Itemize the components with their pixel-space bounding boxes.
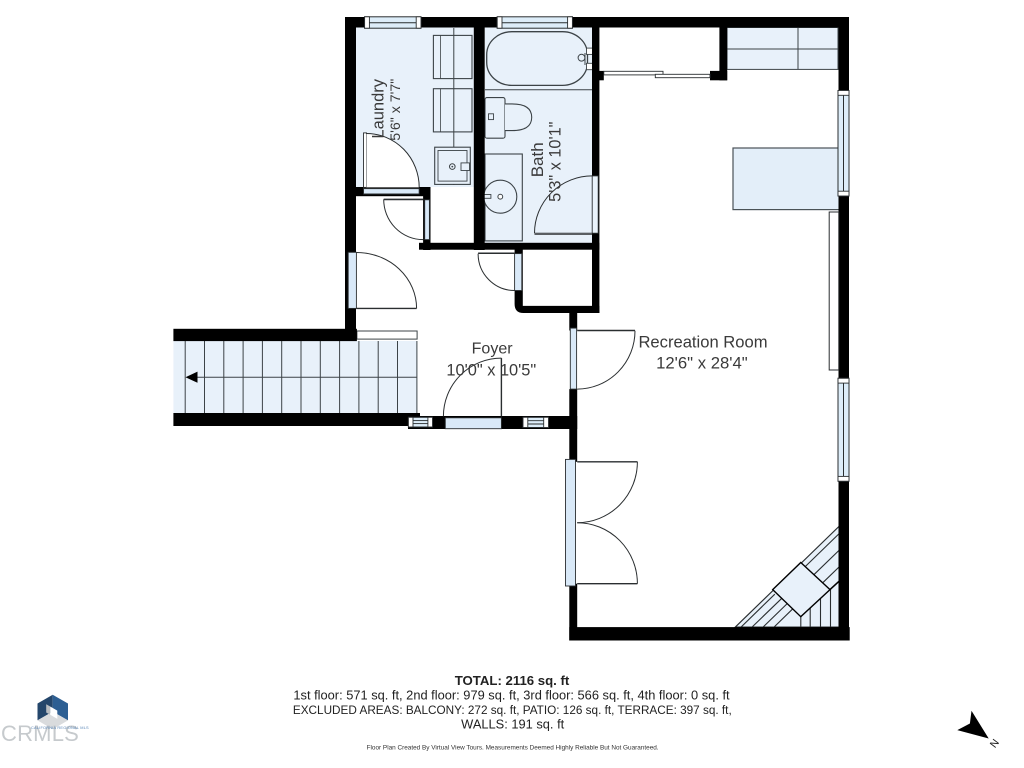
svg-text:12'6" x 28'4": 12'6" x 28'4" [656,353,748,372]
svg-text:EXCLUDED AREAS: BALCONY: 272 s: EXCLUDED AREAS: BALCONY: 272 sq. ft, PAT… [293,704,732,717]
svg-text:10'0" x 10'5": 10'0" x 10'5" [446,362,536,380]
svg-text:Floor Plan Created By Virtual: Floor Plan Created By Virtual View Tours… [367,744,659,751]
svg-text:Laundry: Laundry [370,78,388,138]
svg-text:5'6" x 7'7": 5'6" x 7'7" [388,79,404,141]
svg-text:5'3" x 10'1": 5'3" x 10'1" [547,121,565,201]
svg-text:TOTAL: 2116 sq. ft: TOTAL: 2116 sq. ft [455,673,570,688]
svg-text:WALLS: 191 sq. ft: WALLS: 191 sq. ft [461,717,564,732]
svg-text:1st floor: 571 sq. ft, 2nd flo: 1st floor: 571 sq. ft, 2nd floor: 979 sq… [293,687,730,702]
svg-text:Recreation Room: Recreation Room [638,333,767,352]
svg-text:CALIFORNIA REGIONAL MLS: CALIFORNIA REGIONAL MLS [31,725,89,730]
svg-text:Foyer: Foyer [472,341,514,358]
svg-text:Bath: Bath [528,142,547,177]
